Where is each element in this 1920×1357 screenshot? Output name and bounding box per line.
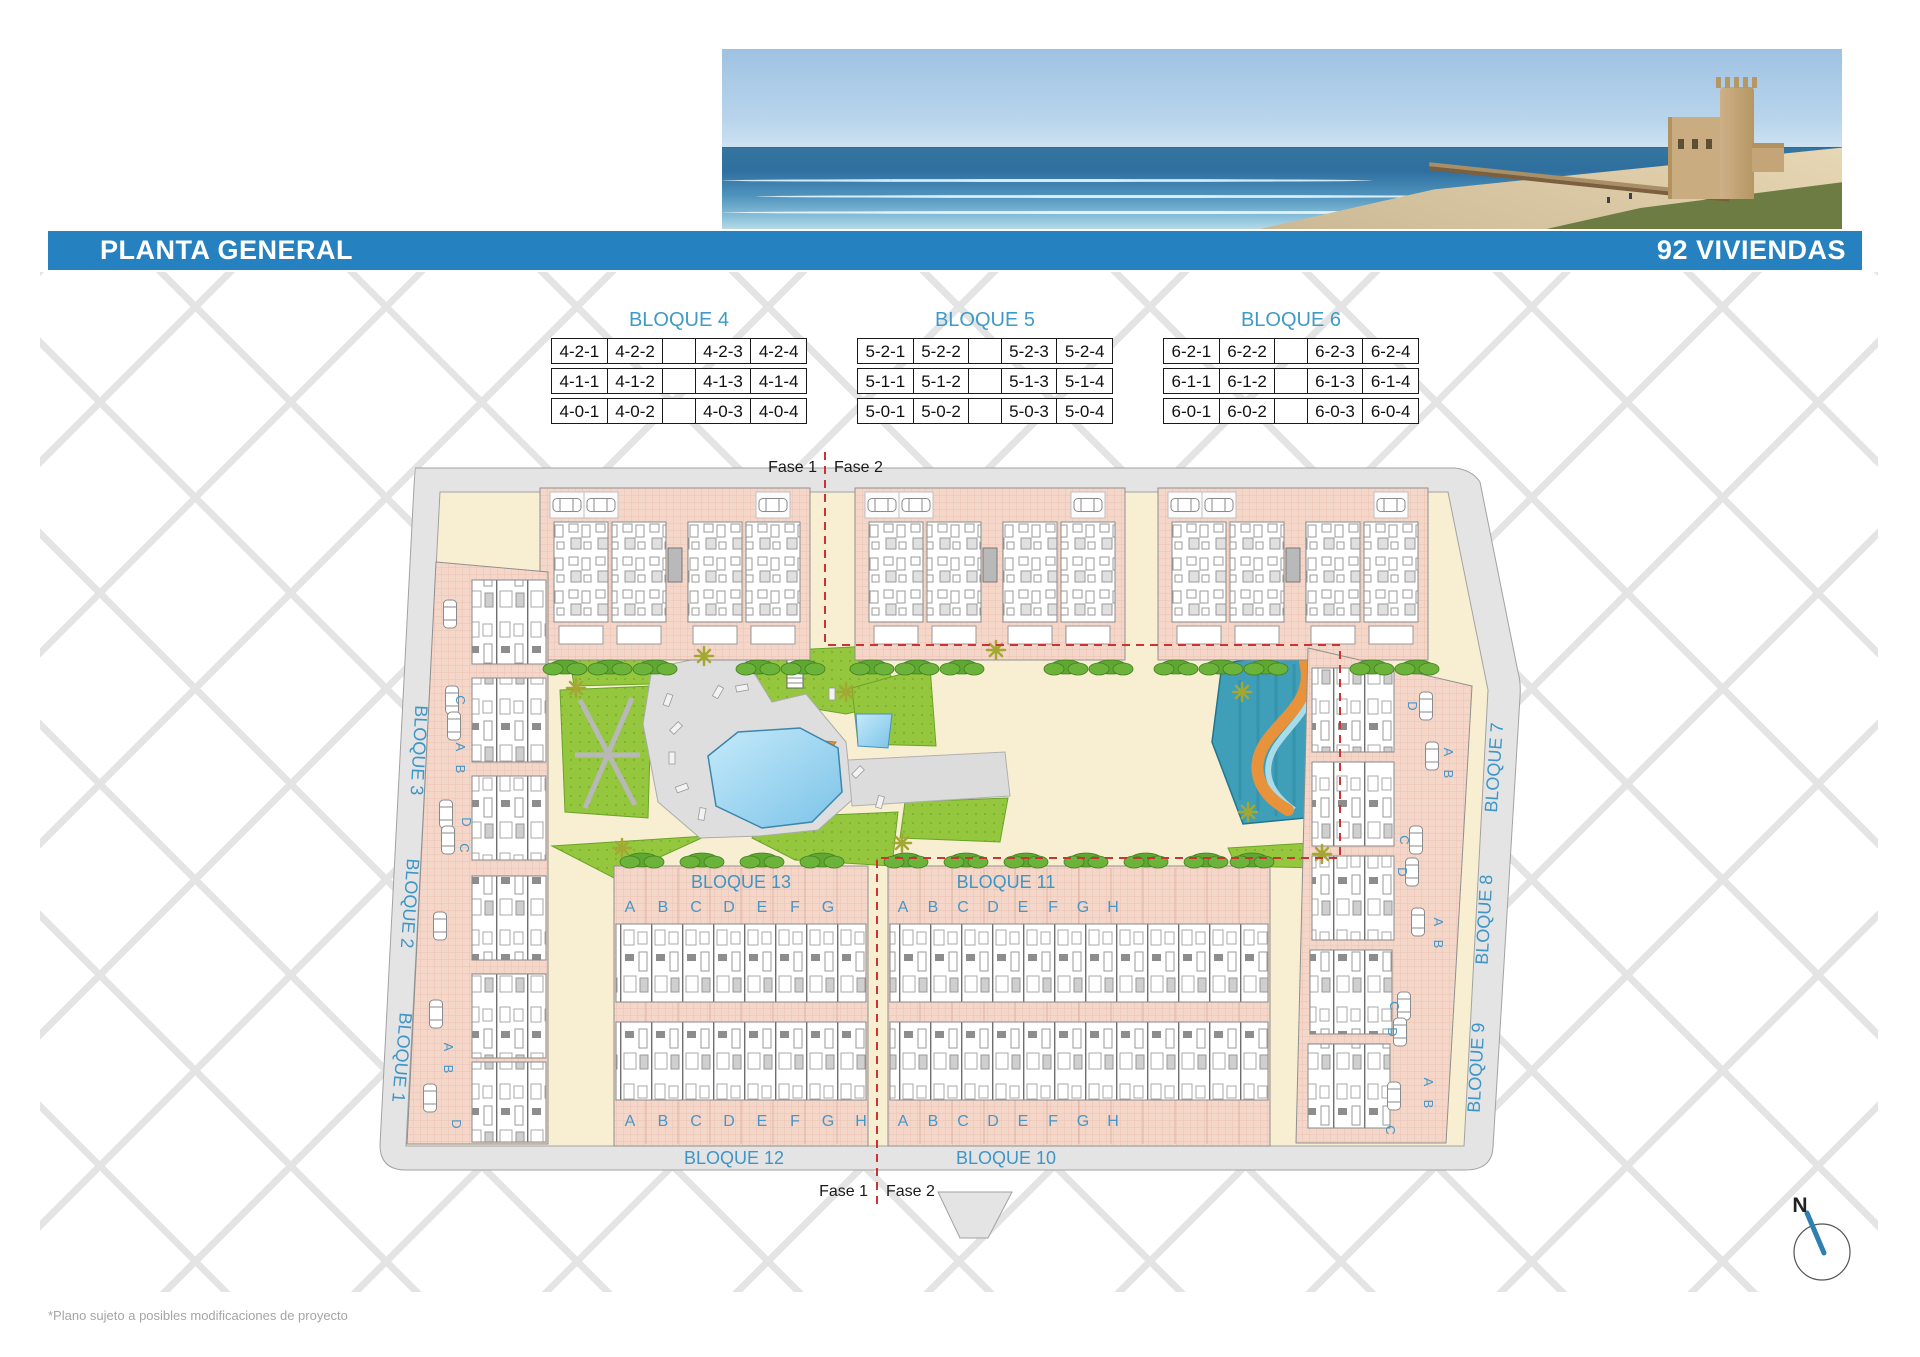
fase2-label-top: Fase 2	[834, 459, 883, 476]
unit-letter: A	[1421, 1078, 1436, 1087]
unit-letter: F	[790, 1113, 800, 1130]
compass-needle	[1807, 1213, 1824, 1253]
unit-letter: D	[459, 817, 474, 826]
unit-letter: A	[453, 743, 468, 752]
unit-letter: D	[1405, 701, 1420, 710]
unit-letter: G	[822, 899, 834, 916]
unit-letter: B	[928, 899, 939, 916]
unit-letter: G	[1077, 1113, 1089, 1130]
unit-letter: E	[1018, 1113, 1029, 1130]
block-label-bloque12: BLOQUE 12	[684, 1148, 784, 1168]
unit-letter: C	[1387, 1001, 1402, 1010]
building-bloque4	[540, 488, 810, 660]
unit-letter: A	[898, 1113, 909, 1130]
unit-letter: A	[1431, 918, 1446, 927]
unit-letter: D	[449, 1119, 464, 1128]
unit-letter: B	[928, 1113, 939, 1130]
unit-letter: A	[625, 899, 636, 916]
compass: N	[1792, 1194, 1850, 1280]
unit-letter: C	[1397, 835, 1412, 844]
unit-letter: D	[723, 899, 735, 916]
site-plan: C A B D C A B D D A B	[0, 0, 1920, 1357]
unit-letter: E	[1018, 899, 1029, 916]
unit-letter: A	[1441, 748, 1456, 757]
unit-letter: C	[690, 899, 702, 916]
page: PLANTA GENERAL 92 VIVIENDAS BLOQUE 4 4-2…	[0, 0, 1920, 1357]
unit-letter: H	[855, 1113, 867, 1130]
east-column-buildings: D A B C D A B C D A B C	[1296, 648, 1472, 1143]
unit-letter: C	[1383, 1125, 1398, 1134]
compass-north-label: N	[1792, 1194, 1807, 1217]
fase1-label-top: Fase 1	[768, 459, 817, 476]
unit-letter: F	[1048, 899, 1058, 916]
unit-letter: E	[757, 899, 768, 916]
unit-letter: B	[658, 1113, 669, 1130]
unit-letter: D	[1385, 1027, 1400, 1036]
unit-letter: C	[457, 843, 472, 852]
fase1-label-bottom: Fase 1	[819, 1183, 868, 1200]
unit-letter: C	[690, 1113, 702, 1130]
unit-letter: H	[1107, 1113, 1119, 1130]
unit-letter: C	[957, 1113, 969, 1130]
south-entrance-ramp	[938, 1192, 1012, 1238]
unit-letter: B	[658, 899, 669, 916]
unit-letter: H	[1107, 899, 1119, 916]
building-bloque5	[855, 488, 1125, 660]
unit-letter: G	[1077, 899, 1089, 916]
building-bloque13-12: BLOQUE 13 A B C D E F G A B C D E F G H	[614, 866, 868, 1146]
unit-letter: B	[1421, 1100, 1436, 1109]
disclaimer-note: *Plano sujeto a posibles modificaciones …	[48, 1308, 348, 1323]
building-bloque11-10: BLOQUE 11 A B C D E F G H A B C D E F G …	[888, 866, 1270, 1146]
block-label-bloque11: BLOQUE 11	[957, 872, 1056, 892]
unit-letter: E	[757, 1113, 768, 1130]
unit-letter: B	[441, 1065, 456, 1074]
unit-letter: G	[822, 1113, 834, 1130]
unit-letter: B	[1441, 770, 1456, 779]
unit-letter: D	[987, 1113, 999, 1130]
unit-letter: B	[1431, 940, 1446, 949]
block-label-bloque13: BLOQUE 13	[691, 872, 791, 892]
block-label-bloque10: BLOQUE 10	[956, 1148, 1056, 1168]
unit-letter: F	[790, 899, 800, 916]
unit-letter: A	[625, 1113, 636, 1130]
unit-letter: D	[987, 899, 999, 916]
deck-path	[848, 752, 1010, 806]
unit-letter: F	[1048, 1113, 1058, 1130]
unit-letter: D	[723, 1113, 735, 1130]
unit-letter: C	[453, 695, 468, 704]
unit-letter: D	[1395, 867, 1410, 876]
unit-letter: C	[957, 899, 969, 916]
unit-letter: A	[898, 899, 909, 916]
unit-letter: A	[441, 1043, 456, 1052]
unit-letter: B	[453, 765, 468, 774]
building-bloque6	[1158, 488, 1428, 660]
small-pool	[856, 714, 892, 748]
fase2-label-bottom: Fase 2	[886, 1183, 935, 1200]
